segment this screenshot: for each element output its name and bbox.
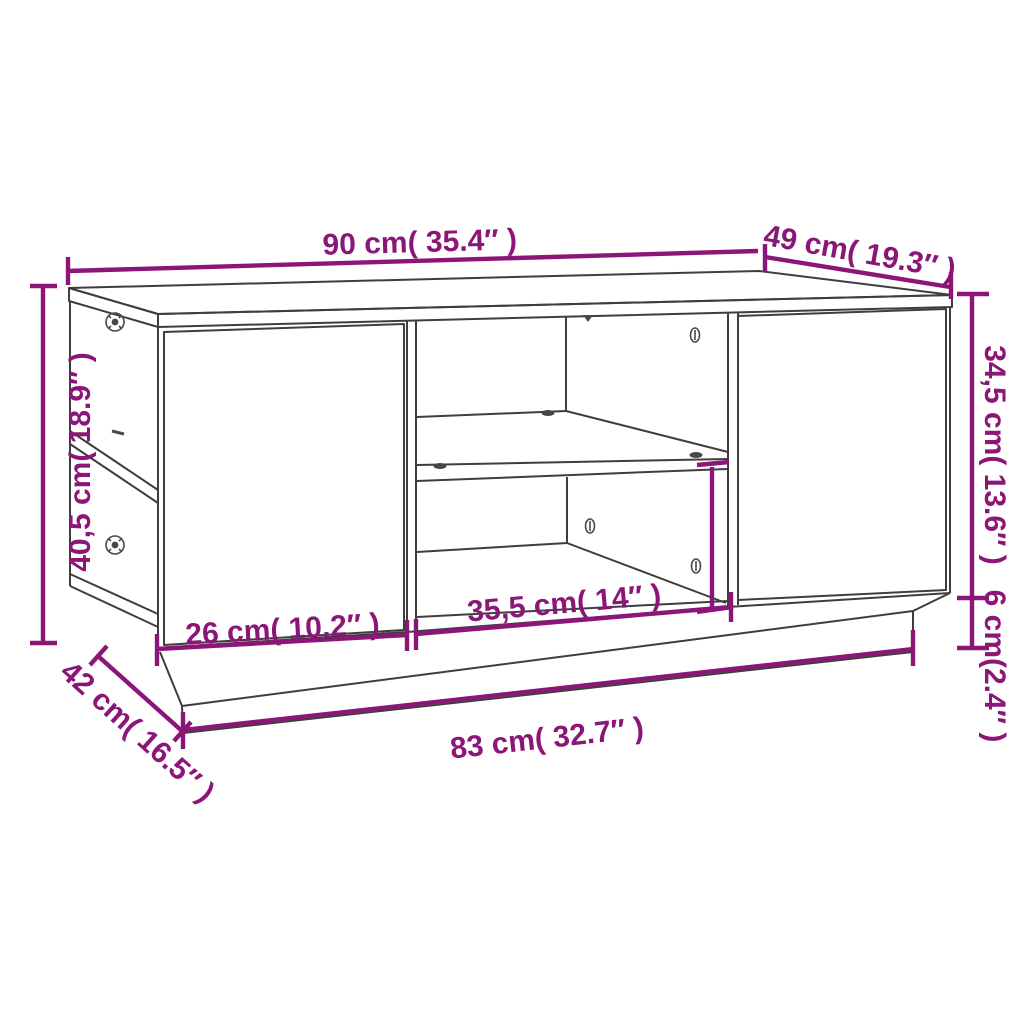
dim-top-depth: 49 cm( 19.3″ ) <box>761 219 958 299</box>
dim-left-height: 40,5 cm( 18.9″ ) <box>30 286 97 643</box>
screw-head <box>692 559 701 573</box>
left-middle-divider <box>407 321 416 631</box>
shelf-pin <box>434 463 447 469</box>
screw-head <box>106 536 124 554</box>
furniture-dimension-diagram: 90 cm( 35.4″ ) 49 cm( 19.3″ ) 40,5 cm( 1… <box>0 0 1024 1024</box>
furniture-outline <box>69 271 952 733</box>
dim-base-width: 83 cm( 32.7″ ) <box>183 630 913 766</box>
shelf-pin <box>690 452 703 458</box>
dim-right-base-height-label: 6 cm(2.4″ ) <box>978 590 1011 743</box>
screw-head <box>106 313 124 331</box>
dimension-annotations: 90 cm( 35.4″ ) 49 cm( 19.3″ ) 40,5 cm( 1… <box>30 219 1011 809</box>
shelf-pin <box>542 410 555 416</box>
tabletop <box>69 271 952 327</box>
dim-left-height-label: 40,5 cm( 18.9″ ) <box>64 352 97 572</box>
middle-upper-compartment <box>417 315 728 481</box>
screw-head <box>586 519 595 533</box>
dim-left-door-width-label: 26 cm( 10.2″ ) <box>184 608 380 652</box>
dim-top-width-label: 90 cm( 35.4″ ) <box>322 223 517 261</box>
diagram-canvas: 90 cm( 35.4″ ) 49 cm( 19.3″ ) 40,5 cm( 1… <box>0 0 1024 1024</box>
dim-right-body-height-label: 34,5 cm( 13.6″ ) <box>978 345 1011 565</box>
dim-left-door-width: 26 cm( 10.2″ ) <box>157 608 407 666</box>
dim-top-width: 90 cm( 35.4″ ) <box>68 223 758 285</box>
middle-right-divider <box>728 312 738 606</box>
screw-head <box>691 328 700 342</box>
dim-base-width-label: 83 cm( 32.7″ ) <box>448 711 645 765</box>
dim-right-heights: 34,5 cm( 13.6″ ) 6 cm(2.4″ ) <box>957 294 1011 742</box>
right-door <box>738 309 946 600</box>
dim-top-depth-label: 49 cm( 19.3″ ) <box>761 219 958 286</box>
shelf-pin <box>583 315 593 322</box>
left-door <box>164 324 404 645</box>
